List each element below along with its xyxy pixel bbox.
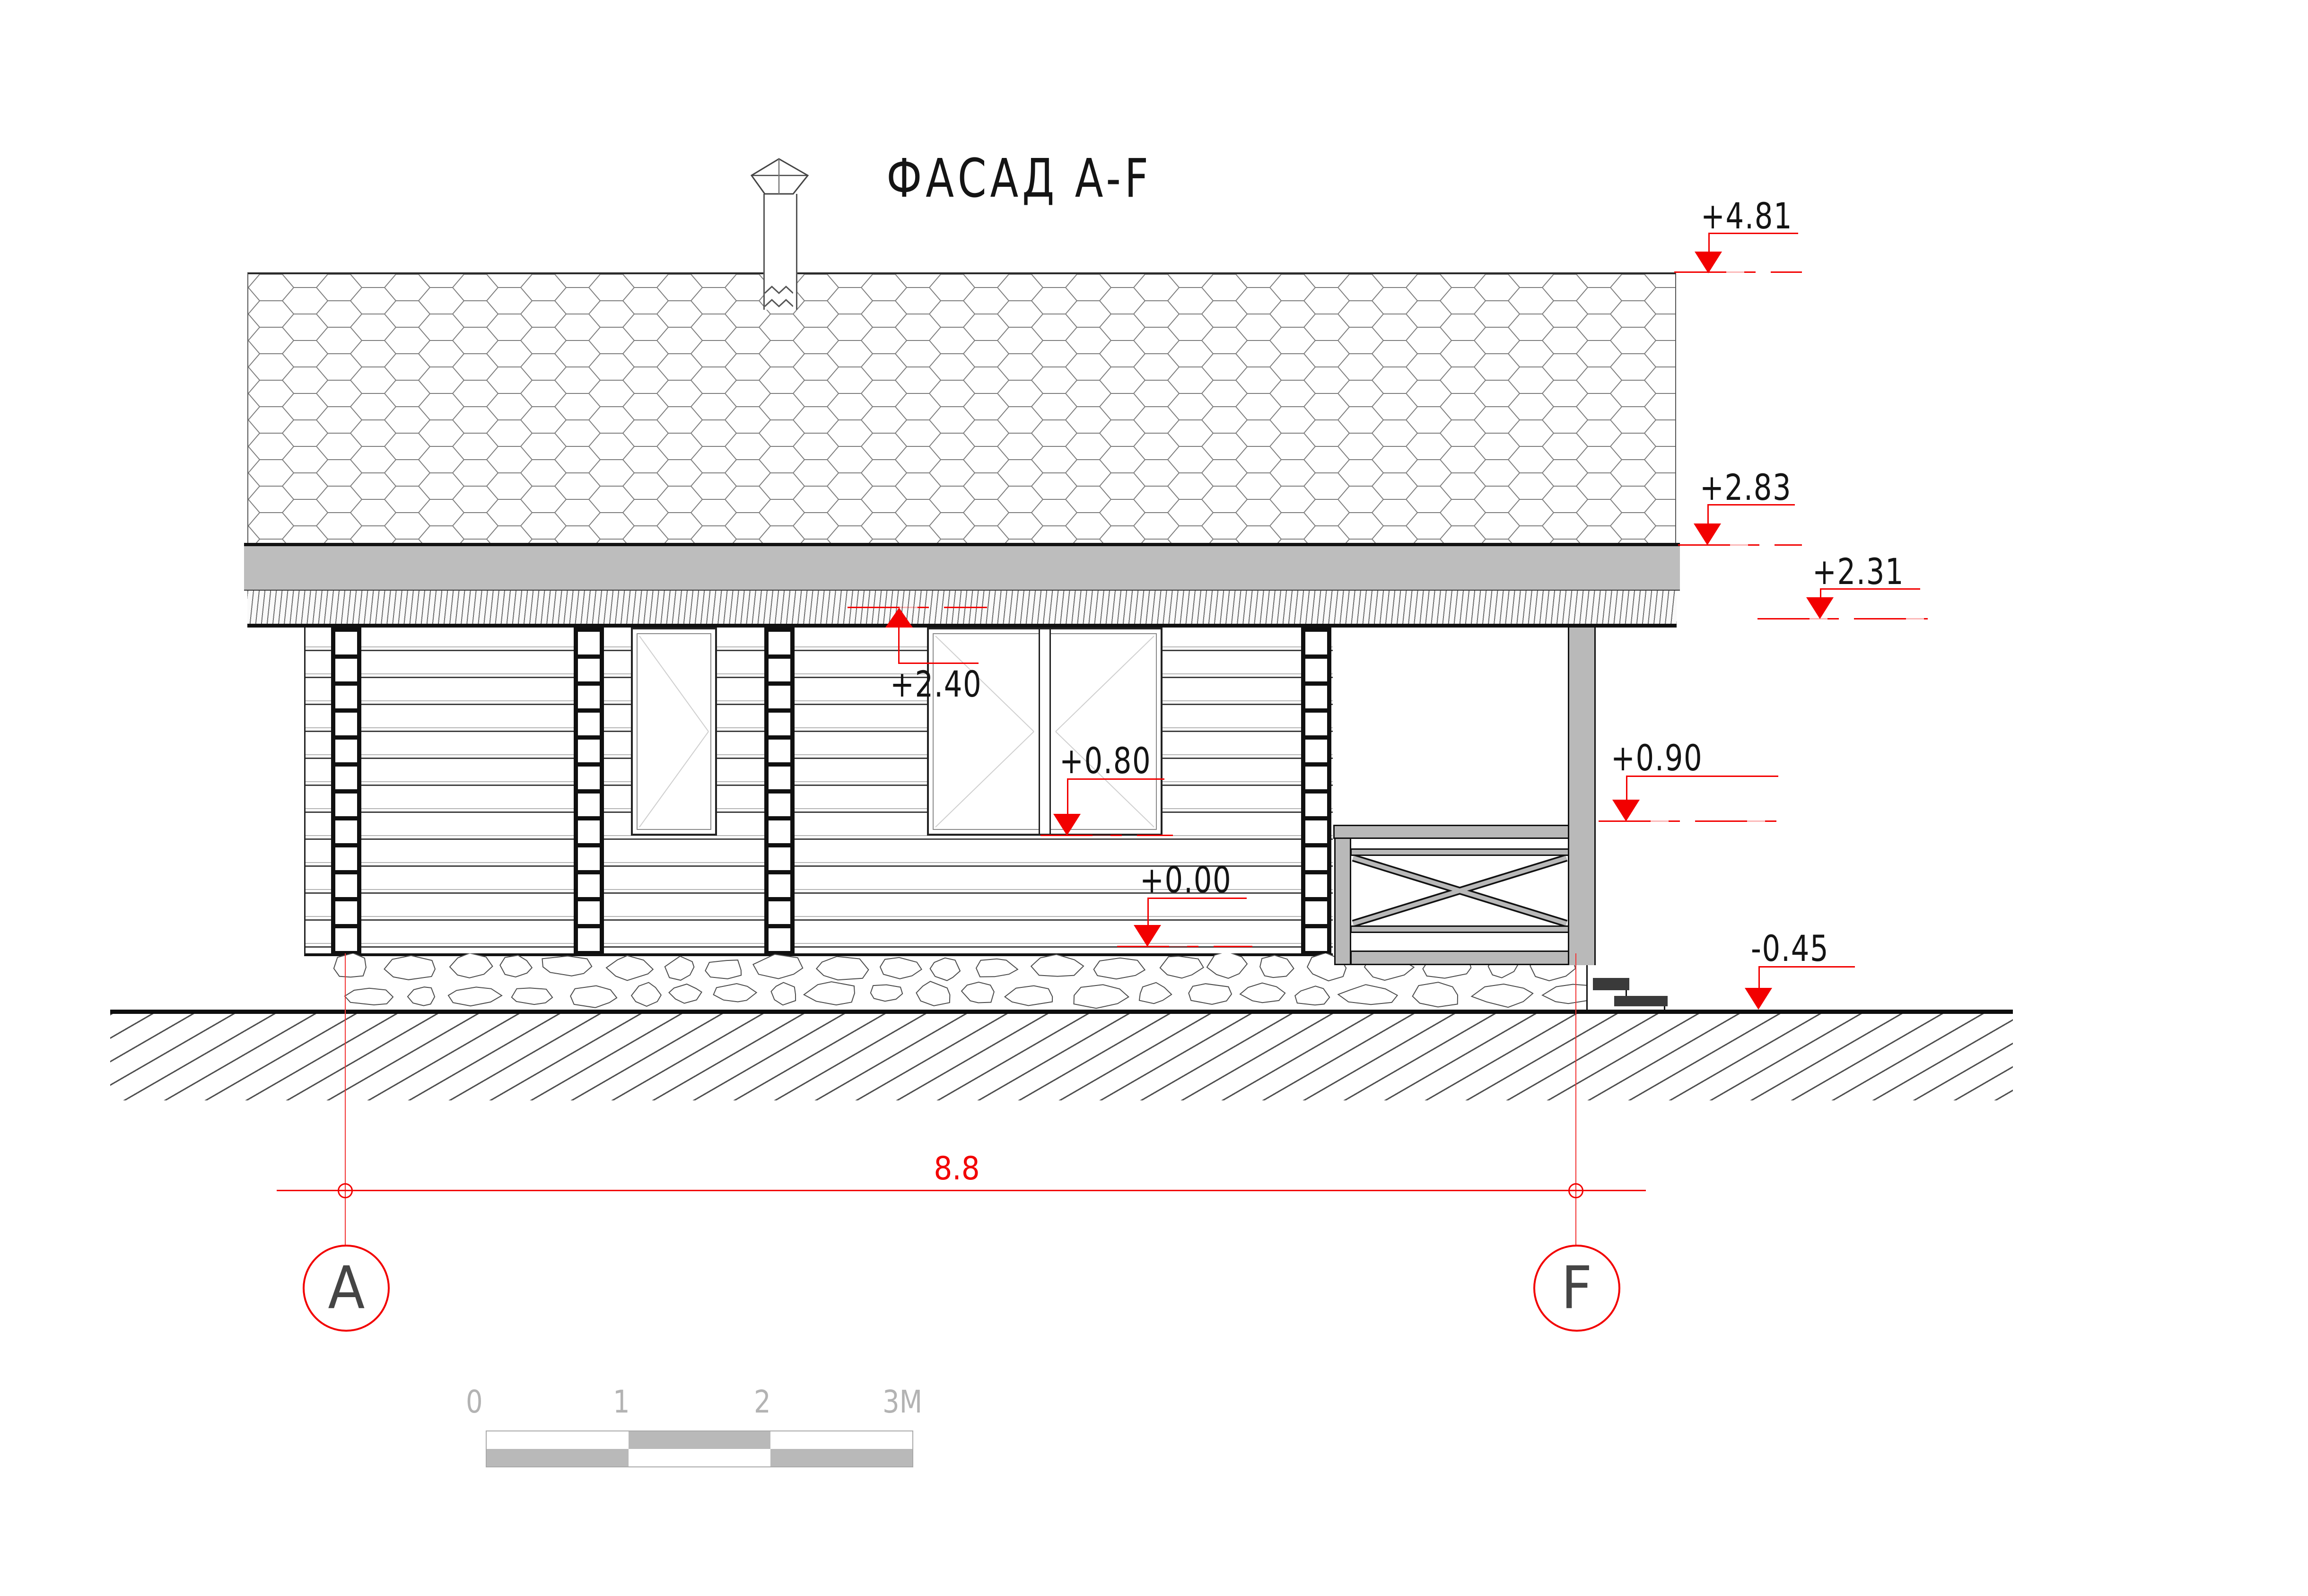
- level-arrow-icon: [1695, 252, 1722, 273]
- dimension-end-circle-a: [338, 1183, 353, 1198]
- porch-post: [1568, 628, 1596, 965]
- level-line: [848, 607, 987, 608]
- leader-underline: [1820, 588, 1920, 590]
- railing-bottom-band: [1350, 951, 1569, 965]
- scale-cell: [487, 1449, 629, 1466]
- leader-underline: [1707, 504, 1795, 506]
- leader-vline: [1067, 778, 1068, 815]
- leader-vline: [1147, 898, 1149, 926]
- leader-underline: [1758, 966, 1855, 968]
- log-column-3: [764, 628, 795, 953]
- dimension-line: [277, 1190, 1646, 1191]
- level-arrow-icon: [1134, 925, 1161, 947]
- step-1: [1593, 978, 1629, 990]
- railing-x-lattice: [1350, 856, 1569, 925]
- scale-cell: [487, 1431, 629, 1449]
- level-line: [1674, 271, 1802, 273]
- scale-bar: [486, 1430, 913, 1467]
- window-1-casement-lines: [633, 629, 715, 834]
- log-column-4: [1301, 628, 1331, 953]
- scale-cell: [629, 1431, 770, 1449]
- level-arrow-icon: [1612, 800, 1640, 821]
- soffit-band: [247, 591, 1677, 628]
- elevation-label: +0.80: [1059, 745, 1151, 776]
- leader-vline: [1708, 233, 1710, 253]
- scale-label-0: 0: [466, 1384, 483, 1420]
- railing-mid-rail: [1350, 848, 1569, 856]
- elevation-label: +0.90: [1611, 742, 1703, 774]
- chimney-cap-icon: [747, 156, 812, 197]
- railing-low-rail: [1350, 925, 1569, 933]
- leader-underline: [1626, 776, 1778, 777]
- level-arrow-icon: [1745, 988, 1772, 1010]
- axis-bubble-a: A: [303, 1245, 390, 1332]
- scale-label-3m: 3M: [883, 1384, 922, 1420]
- level-arrow-icon: [885, 608, 913, 628]
- scale-cell: [629, 1449, 770, 1466]
- leader-vline: [1758, 966, 1760, 988]
- railing-left-post: [1334, 825, 1351, 965]
- leader-underline: [1067, 778, 1164, 780]
- step-2: [1614, 996, 1668, 1006]
- dimension-label: 8.8: [914, 1150, 999, 1187]
- window-1: [631, 628, 717, 836]
- level-arrow-icon: [1694, 523, 1721, 545]
- scale-cell: [770, 1431, 912, 1449]
- log-column-1: [331, 628, 361, 953]
- scale-cell: [770, 1449, 912, 1466]
- elevation-label: +2.40: [890, 669, 982, 700]
- elevation-label: +0.00: [1140, 864, 1232, 896]
- window-2: [927, 628, 1163, 836]
- elevation-label: +2.31: [1812, 556, 1904, 587]
- elevation-label: +4.81: [1701, 201, 1792, 232]
- level-line: [1757, 618, 1928, 619]
- axis-line-a: [345, 953, 346, 1245]
- foundation-right-edge: [1586, 965, 1588, 1010]
- axis-line-f: [1575, 953, 1576, 1245]
- leader-vline: [898, 628, 900, 663]
- scale-label-1: 1: [613, 1384, 630, 1420]
- leader-underline: [1708, 233, 1798, 234]
- railing-top-rail: [1333, 825, 1569, 839]
- drawing-title: ФАСАД A-F: [828, 152, 1211, 205]
- log-wall: [304, 628, 1333, 956]
- window-2-casement-lines: [929, 629, 1161, 834]
- roof: [247, 272, 1676, 546]
- facade-elevation-drawing: ФАСАД A-F: [0, 0, 2308, 1596]
- leader-underline: [1147, 898, 1247, 899]
- fascia-band: [244, 543, 1680, 591]
- chimney-pipe: [763, 194, 797, 310]
- elevation-label: -0.45: [1751, 933, 1829, 964]
- chimney-flashing-icon: [765, 194, 793, 310]
- axis-bubble-f: F: [1533, 1245, 1620, 1332]
- leader-vline: [1707, 504, 1709, 526]
- dimension-end-circle-f: [1568, 1183, 1583, 1198]
- ground-hatch: [110, 1010, 2013, 1100]
- leader-vline: [1626, 776, 1627, 801]
- level-arrow-icon: [1806, 597, 1834, 619]
- axis-label-f: F: [1561, 1254, 1592, 1322]
- scale-label-2: 2: [754, 1384, 771, 1420]
- axis-label-a: A: [328, 1254, 365, 1322]
- roof-shingle-pattern: [248, 274, 1675, 544]
- log-column-2: [574, 628, 604, 953]
- level-arrow-icon: [1053, 814, 1081, 836]
- elevation-label: +2.83: [1700, 472, 1792, 503]
